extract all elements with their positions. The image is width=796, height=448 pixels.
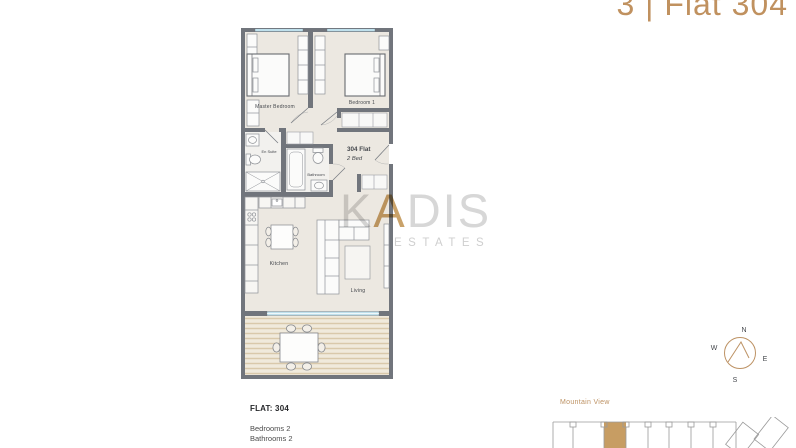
view-label: Mountain View: [560, 399, 610, 406]
building-locator-diagram: [551, 417, 796, 448]
master-bedroom-label: Master Bedroom: [255, 104, 295, 110]
bedroom-1-label: Bedroom 1: [349, 100, 375, 106]
flat-details: FLAT: 304 Bedrooms 2 Bathrooms 2: [250, 404, 293, 444]
bathroom-label: Bathroom: [307, 172, 325, 177]
en-suite-label: En Suite: [261, 149, 277, 154]
flat-heading: FLAT: 304: [250, 404, 293, 413]
closet-shelves: [342, 113, 387, 127]
entry-closet: [362, 175, 387, 189]
compass-icon: N W E S: [700, 312, 784, 396]
compass-e: E: [763, 356, 768, 363]
flat-type-label: 2 Bed: [346, 156, 363, 162]
floor-plan: Master Bedroom Bedroom 1 En Suite Bathro…: [241, 28, 393, 381]
floor-plan-svg: Master Bedroom Bedroom 1 En Suite Bathro…: [241, 28, 393, 381]
kitchen-label: Kitchen: [270, 261, 289, 267]
detail-bathrooms: Bathrooms 2: [250, 434, 293, 444]
brochure-page: { "header": { "title": "3 | Flat 304" },…: [0, 0, 796, 448]
compass-w: W: [711, 345, 718, 352]
watermark-subtitle: ESTATES: [394, 237, 500, 249]
compass-s: S: [733, 377, 738, 384]
page-title: 3 | Flat 304: [616, 0, 788, 24]
detail-bedrooms: Bedrooms 2: [250, 424, 293, 434]
living-label: Living: [351, 288, 366, 294]
corridor-closet: [287, 132, 313, 144]
compass-n: N: [741, 327, 746, 334]
flat-label: 304 Flat: [347, 146, 371, 153]
